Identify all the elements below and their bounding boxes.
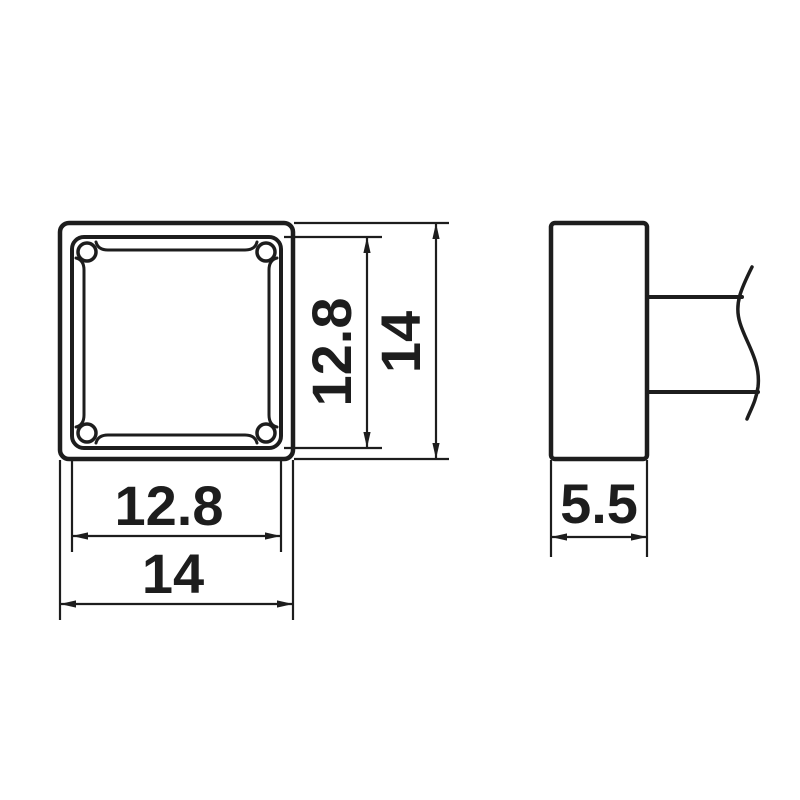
face-inset-edge-right — [269, 258, 277, 427]
arrowhead — [432, 443, 439, 459]
break-line — [738, 267, 759, 419]
corner-relief-top-right — [257, 243, 275, 261]
front-view — [60, 223, 293, 459]
face-inset-edge-top — [96, 242, 257, 250]
corner-relief-bottom-left — [78, 424, 96, 442]
arrowhead — [277, 600, 293, 607]
front-face-outline — [72, 237, 281, 448]
face-inset-edge-bottom — [96, 435, 257, 443]
arrowhead — [72, 532, 88, 539]
dim-label-face-height: 12.8 — [300, 298, 363, 407]
corner-relief-top-left — [78, 243, 96, 261]
face-inset-edge-left — [76, 258, 84, 427]
corner-relief-bottom-right — [257, 424, 275, 442]
side-view — [551, 223, 758, 459]
arrowhead — [60, 600, 76, 607]
arrowhead — [363, 237, 370, 253]
dimension-drawing: 12.8 14 12.8 14 5.5 — [0, 0, 800, 800]
technical-drawing-page: 12.8 14 12.8 14 5.5 — [0, 0, 800, 800]
arrowhead — [363, 432, 370, 448]
dimension-labels: 12.8 14 12.8 14 5.5 — [115, 298, 638, 606]
arrowhead — [432, 223, 439, 239]
arrowhead — [265, 532, 281, 539]
dim-label-overall-width: 14 — [142, 542, 204, 605]
side-outline — [551, 223, 647, 459]
dim-label-depth: 5.5 — [560, 472, 638, 535]
dim-label-face-width: 12.8 — [115, 474, 224, 537]
dim-label-overall-height: 14 — [369, 311, 432, 373]
